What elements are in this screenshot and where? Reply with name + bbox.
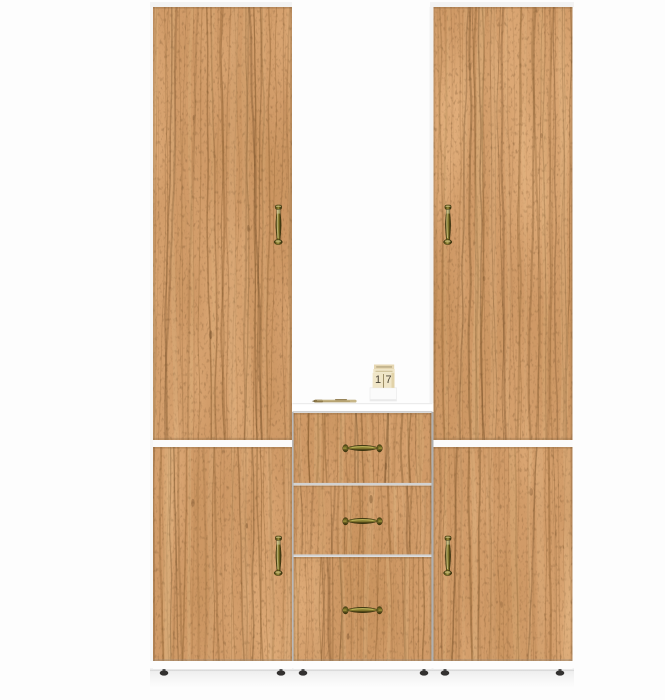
svg-text:7: 7 (386, 374, 392, 386)
svg-text:1: 1 (375, 374, 381, 386)
